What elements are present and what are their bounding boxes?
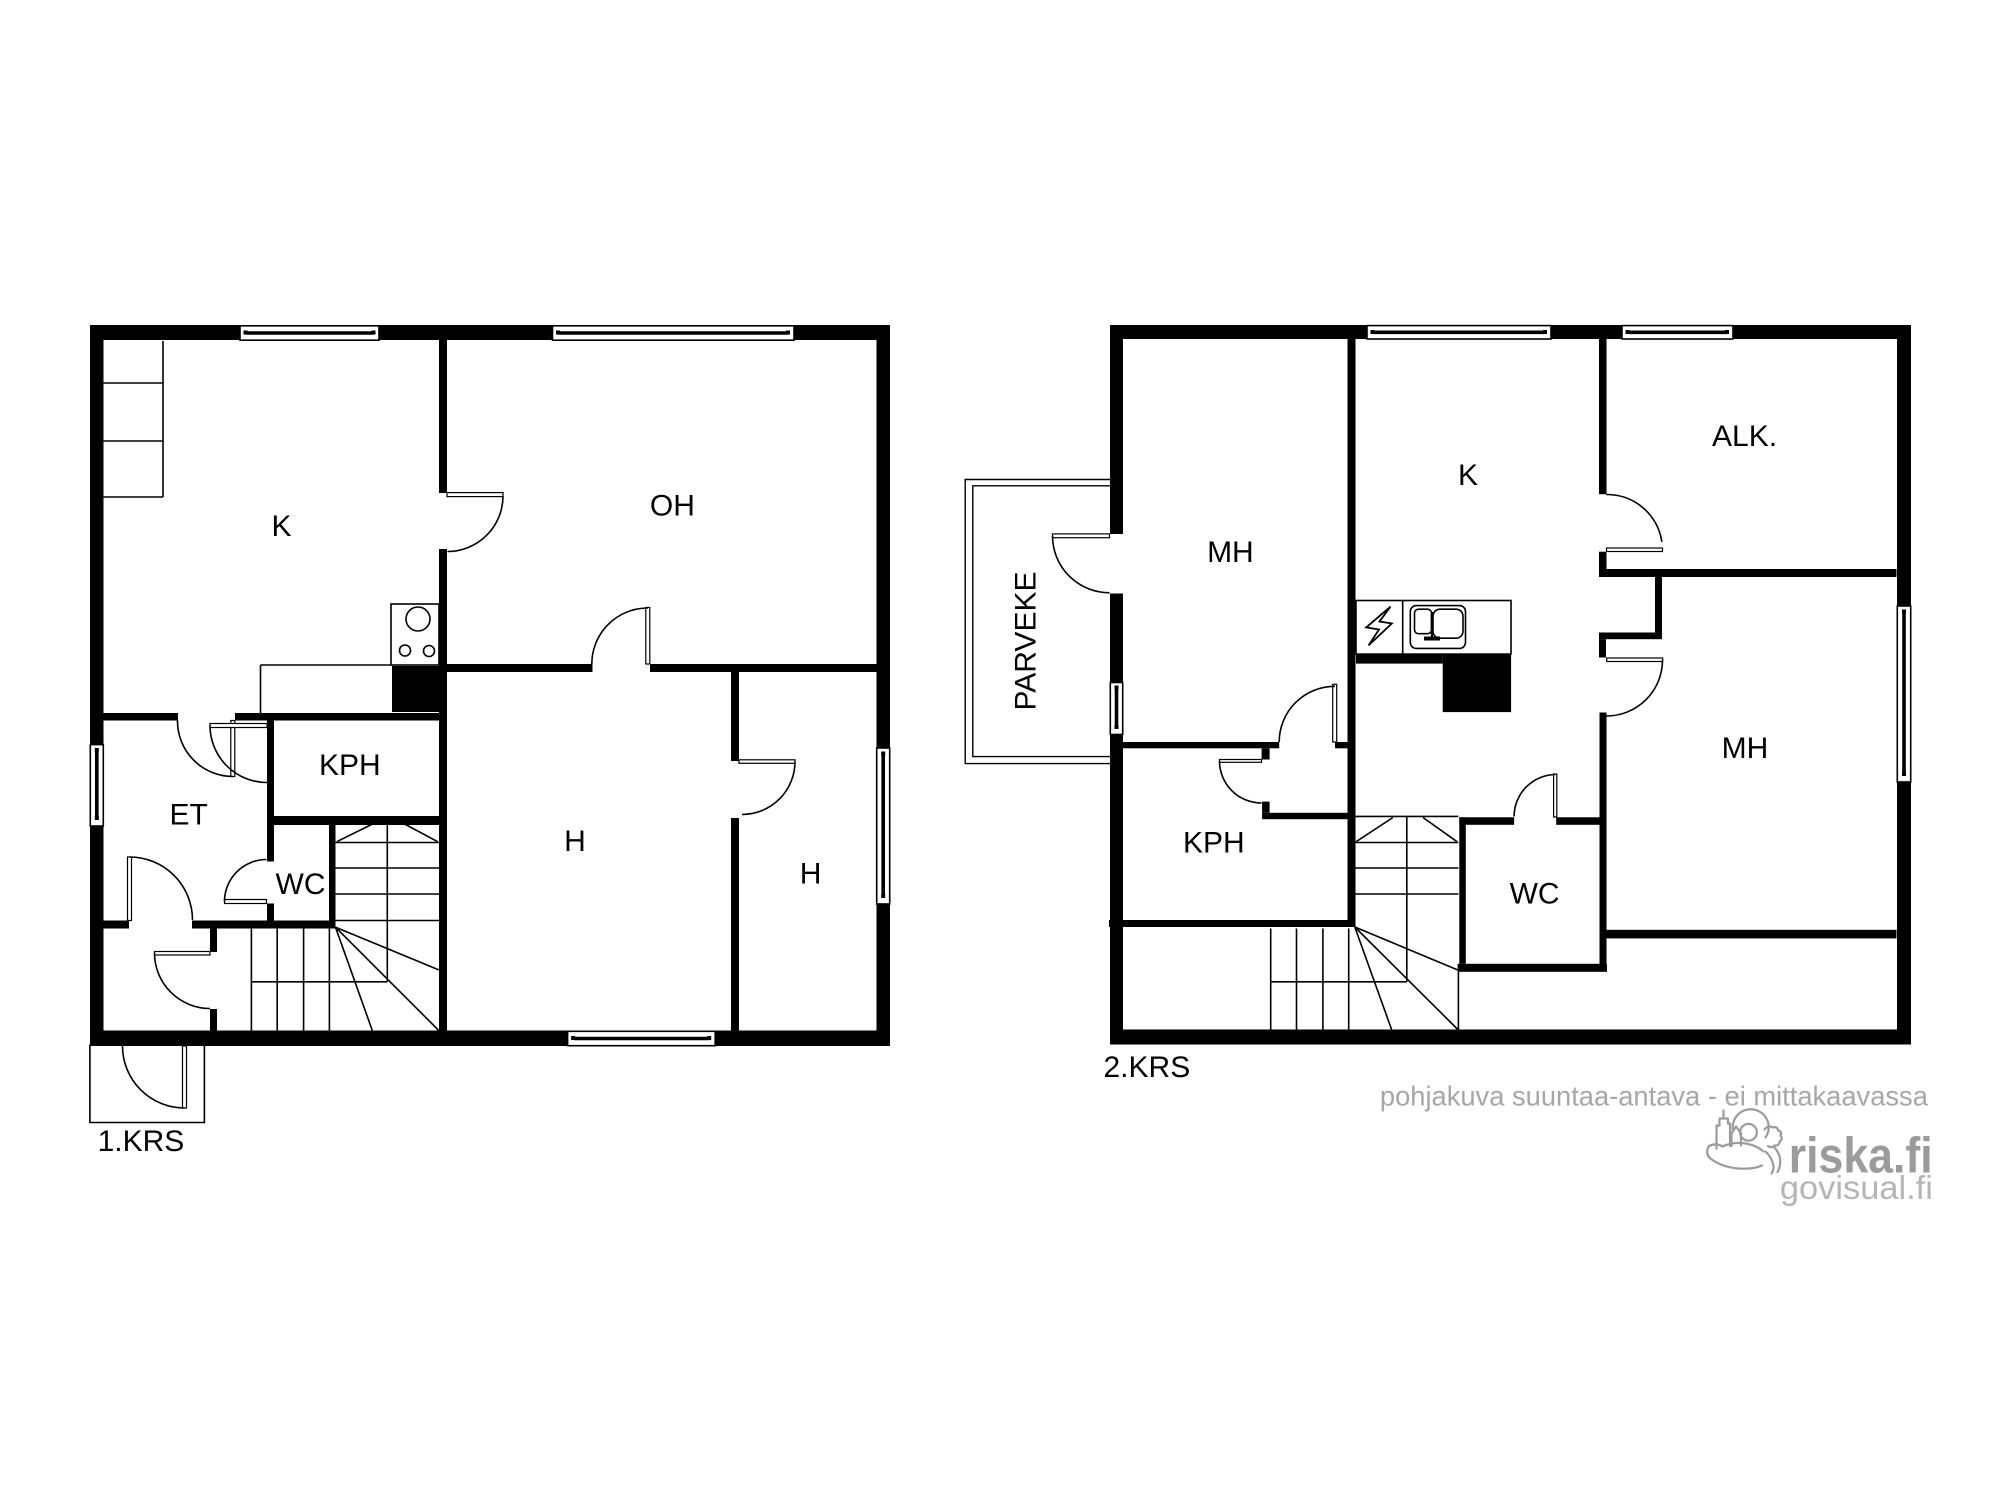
svg-text:PARVEKE: PARVEKE	[1010, 572, 1043, 711]
svg-text:govisual.fi: govisual.fi	[1780, 1169, 1933, 1206]
svg-text:K: K	[271, 510, 291, 543]
svg-text:K: K	[1458, 459, 1478, 492]
svg-text:H: H	[564, 825, 586, 858]
svg-text:KPH: KPH	[1183, 827, 1245, 860]
svg-text:ET: ET	[170, 799, 208, 832]
svg-text:1.KRS: 1.KRS	[98, 1125, 185, 1158]
svg-text:OH: OH	[650, 490, 695, 523]
svg-text:KPH: KPH	[319, 749, 381, 782]
svg-text:WC: WC	[1510, 878, 1560, 911]
svg-text:pohjakuva suuntaa-antava - ei: pohjakuva suuntaa-antava - ei mittakaava…	[1380, 1080, 1928, 1111]
svg-text:MH: MH	[1722, 732, 1769, 765]
svg-text:WC: WC	[276, 868, 326, 901]
svg-text:H: H	[800, 858, 822, 891]
svg-text:2.KRS: 2.KRS	[1104, 1051, 1191, 1084]
svg-text:MH: MH	[1207, 536, 1254, 569]
svg-text:ALK.: ALK.	[1712, 420, 1777, 453]
